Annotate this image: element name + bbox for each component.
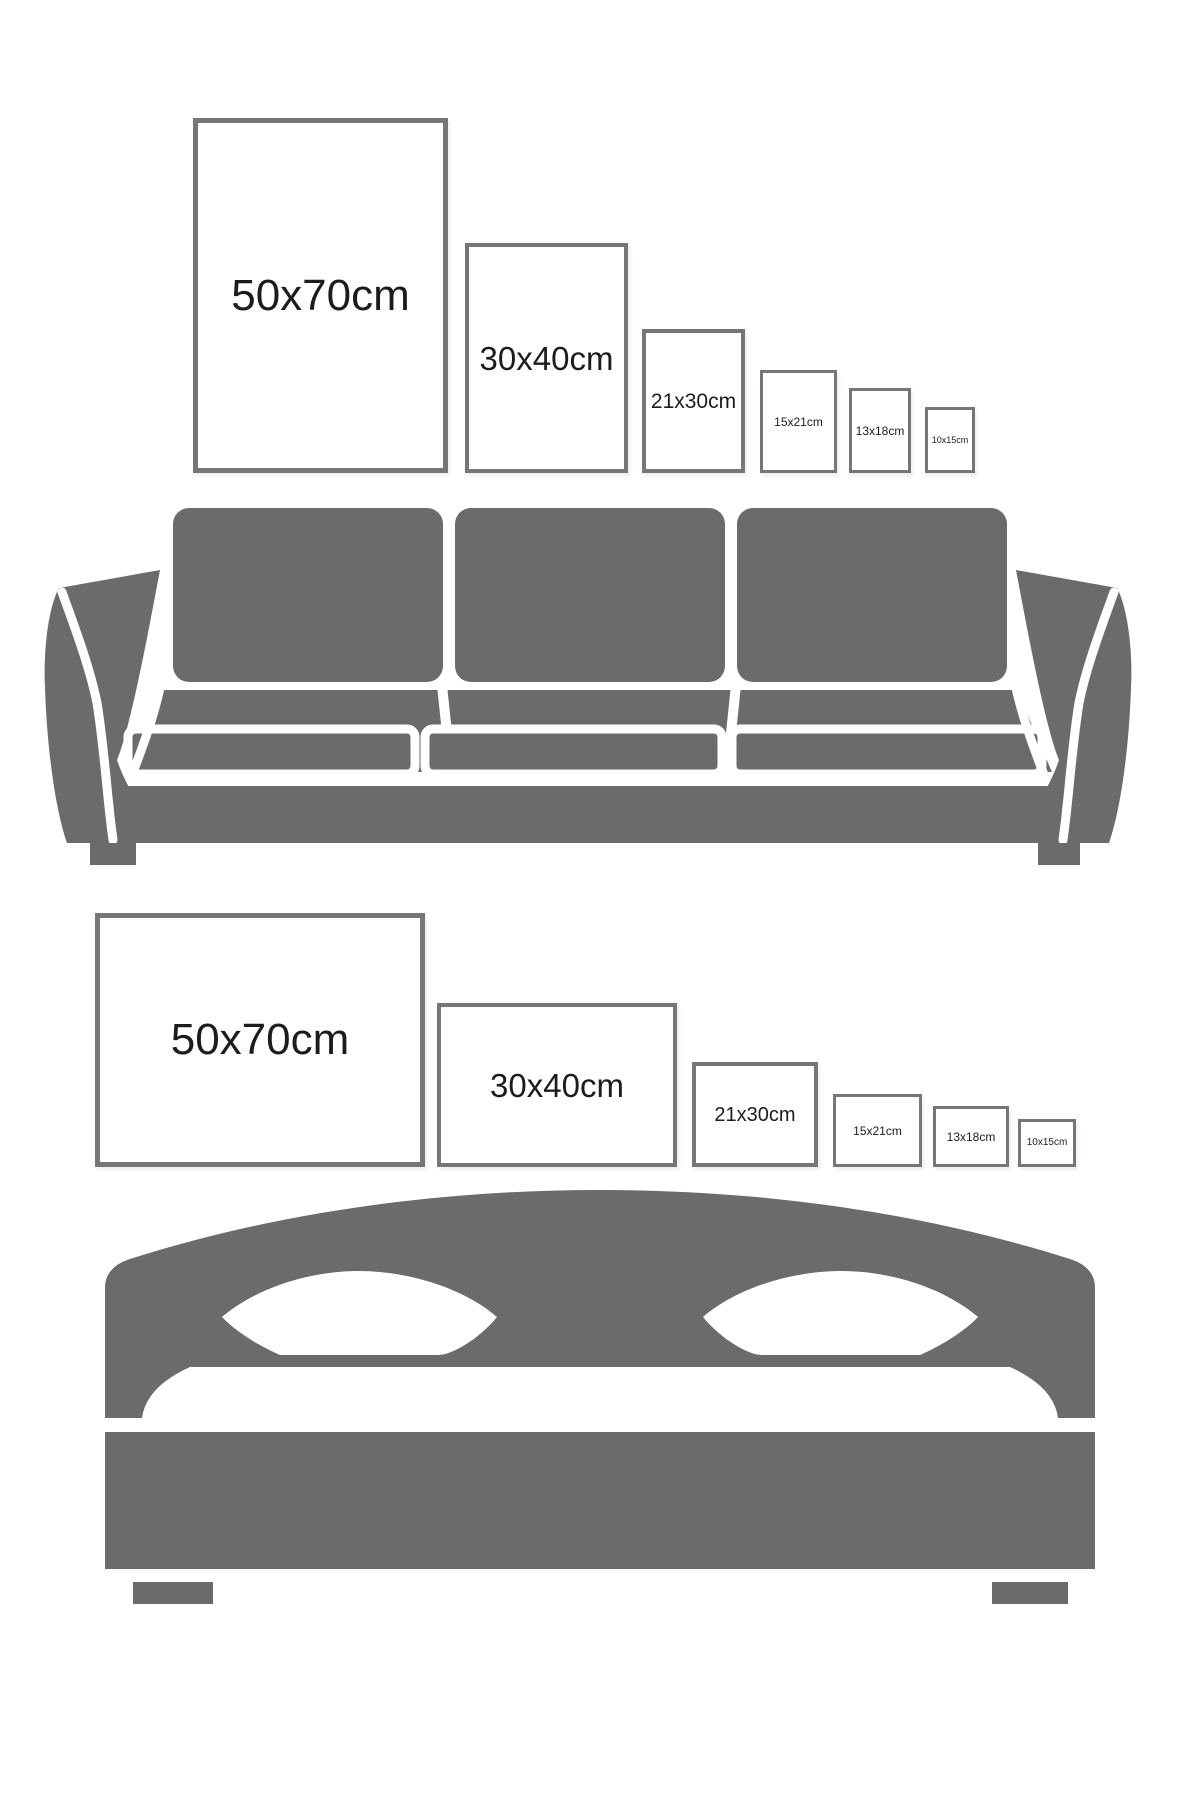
frame-size-label: 50x70cm [171,1018,350,1062]
frame-portrait-13x18: 13x18cm [849,388,911,473]
frame-landscape-10x15: 10x15cm [1018,1119,1076,1167]
bed-illustration [100,1185,1100,1610]
frame-portrait-50x70: 50x70cm [193,118,448,473]
frame-landscape-15x21: 15x21cm [833,1094,922,1167]
frame-landscape-50x70: 50x70cm [95,913,425,1167]
frame-size-label: 30x40cm [480,342,614,375]
frame-size-label: 15x21cm [853,1125,902,1137]
frame-portrait-30x40: 30x40cm [465,243,628,473]
sofa-foot-right [1038,843,1080,865]
frame-size-label: 13x18cm [947,1131,996,1143]
frame-size-label: 30x40cm [490,1069,624,1102]
bed-foot-right [992,1582,1068,1604]
frame-landscape-13x18: 13x18cm [933,1106,1009,1167]
bed-mattress [105,1432,1095,1569]
sofa-seat-cushion-middle [425,729,722,774]
sofa-back-cushion-middle [455,508,725,682]
sofa-seat-cushion-right [732,729,1042,774]
frame-size-label: 15x21cm [774,416,823,428]
frame-size-label: 13x18cm [856,425,905,437]
frame-portrait-15x21: 15x21cm [760,370,837,473]
frame-size-label: 10x15cm [932,436,969,445]
frame-landscape-30x40: 30x40cm [437,1003,677,1167]
frame-portrait-21x30: 21x30cm [642,329,745,473]
sofa-foot-left [90,843,136,865]
frame-size-label: 10x15cm [1027,1138,1068,1148]
frame-size-label: 21x30cm [651,391,736,412]
frame-landscape-21x30: 21x30cm [692,1062,818,1167]
frame-size-label: 21x30cm [714,1105,795,1125]
sofa-back-cushion-right [737,508,1007,682]
size-comparison-infographic: 50x70cm 30x40cm 21x30cm 15x21cm 13x18cm … [0,0,1200,1800]
sofa-base [105,786,1065,843]
sofa-illustration [35,488,1135,868]
sofa-back-cushion-left [173,508,443,682]
frame-size-label: 50x70cm [231,274,410,318]
frame-portrait-10x15: 10x15cm [925,407,975,473]
sofa-seat-cushion-left [128,729,415,774]
bed-foot-left [133,1582,213,1604]
